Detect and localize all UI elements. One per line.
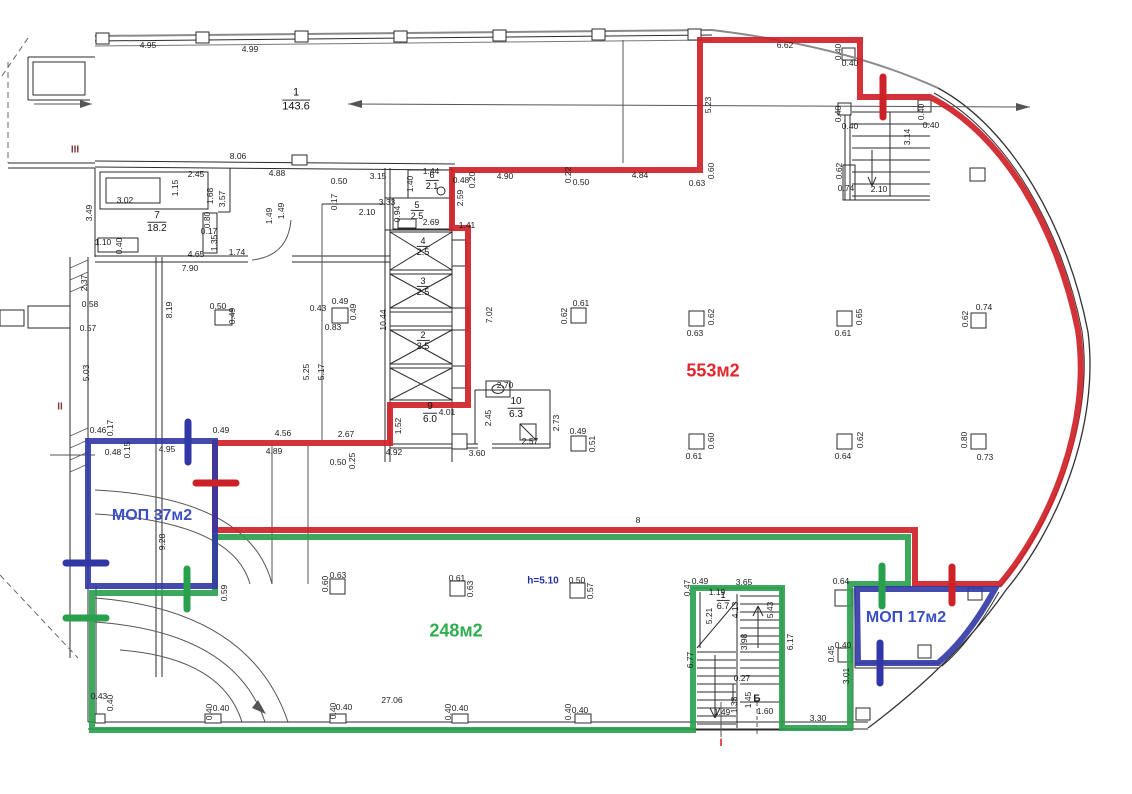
dimension-label: 1.15	[170, 180, 180, 197]
dimension-label: 0.27	[734, 673, 751, 683]
dimension-label: 2.59	[455, 190, 465, 207]
dimension-label: 3.14	[902, 129, 912, 146]
dimension-label: 3.98	[739, 634, 749, 651]
room-number: 4	[417, 236, 430, 247]
dimension-label: 2.10	[359, 207, 376, 217]
room-stamp: 96.0	[423, 401, 437, 426]
dimension-label: 0.49	[213, 425, 230, 435]
dimension-label: 5.21	[704, 608, 714, 625]
dimension-label: 4.89	[266, 446, 283, 456]
dimension-label: 2.45	[483, 410, 493, 427]
dimension-label: 4.95	[140, 40, 157, 50]
dimension-label: 0.83	[325, 322, 342, 332]
dimension-label: 0.74	[838, 183, 855, 193]
dimension-label: 27.06	[381, 695, 402, 705]
dimension-label: 3.02	[117, 195, 134, 205]
dimension-label: 1.74	[229, 247, 246, 257]
area-label: 553м2	[686, 361, 739, 382]
dimension-label: 2.37	[79, 275, 89, 292]
room-area: 2.5	[417, 287, 430, 298]
dimension-label: 4.95	[159, 444, 176, 454]
dimension-label: 3.57	[217, 191, 227, 208]
area-label: h=5.10	[527, 576, 558, 587]
dimension-label: 0.60	[706, 433, 716, 450]
dimension-label: 4.88	[269, 168, 286, 178]
dimension-label: 4.84	[632, 170, 649, 180]
dimension-label: 1.45	[743, 692, 753, 709]
room-area: 143.6	[282, 100, 310, 113]
label-layer: 4.954.996.625.230.400.400.400.400.400.40…	[0, 0, 1132, 794]
dimension-label: 0.49	[332, 296, 349, 306]
dimension-label: 0.62	[960, 311, 970, 328]
room-area: 6.7	[717, 601, 730, 612]
area-label: 248м2	[429, 621, 482, 642]
dimension-label: 0.25	[347, 453, 357, 470]
dimension-label: 6.17	[785, 634, 795, 651]
dimension-label: 6.62	[777, 40, 794, 50]
dimension-label: 0.65	[854, 309, 864, 326]
room-number: 1	[282, 87, 310, 101]
dimension-label: 0.57	[80, 323, 97, 333]
dimension-label: 0.62	[834, 163, 844, 180]
room-number: 5	[411, 200, 424, 211]
room-area: 2.5	[411, 211, 424, 222]
dimension-label: 0.50	[573, 177, 590, 187]
axis-marker: II	[57, 402, 63, 413]
dimension-label: 0.50	[210, 301, 227, 311]
dimension-label: 0.63	[687, 328, 704, 338]
room-number: 1	[717, 590, 730, 601]
dimension-label: 3.60	[469, 448, 486, 458]
dimension-label: 5.23	[703, 97, 713, 114]
dimension-label: 0.40	[835, 640, 852, 650]
room-stamp: 106.3	[507, 396, 524, 421]
room-stamp: 1143.6	[282, 87, 310, 114]
room-stamp: 718.2	[147, 210, 166, 235]
dimension-label: 6.77	[685, 652, 695, 669]
dimension-label: 9.28	[157, 534, 167, 551]
dimension-label: 1.10	[95, 237, 112, 247]
dimension-label: 0.62	[706, 309, 716, 326]
dimension-label: 1.52	[393, 418, 403, 435]
axis-marker: Б	[753, 694, 760, 705]
area-label: МОП 37м2	[112, 507, 192, 525]
room-stamp: 62.1	[426, 170, 439, 192]
dimension-label: 1.40	[405, 176, 415, 193]
room-area: 6.3	[507, 408, 524, 420]
room-number: 10	[507, 396, 524, 409]
dimension-label: 2.10	[871, 184, 888, 194]
dimension-label: 0.94	[392, 206, 402, 223]
room-area: 18.2	[147, 222, 166, 234]
dimension-label: 7.90	[182, 263, 199, 273]
dimension-label: 2.57	[522, 436, 539, 446]
dimension-label: 1.49	[264, 208, 274, 225]
dimension-label: 8	[636, 515, 641, 525]
dimension-label: 0.49	[348, 304, 358, 321]
room-number: 2	[417, 330, 430, 341]
dimension-label: 5.03	[81, 365, 91, 382]
dimension-label: 0.50	[331, 176, 348, 186]
dimension-label: 4.01	[439, 407, 456, 417]
dimension-label: 0.40	[452, 703, 469, 713]
dimension-label: 0.40	[842, 58, 859, 68]
room-number: 9	[423, 401, 437, 414]
dimension-label: 0.60	[706, 163, 716, 180]
dimension-label: 0.50	[330, 457, 347, 467]
dimension-label: 4.99	[242, 44, 259, 54]
dimension-label: 7.02	[484, 307, 494, 324]
room-area: 2.5	[417, 247, 430, 258]
dimension-label: 0.62	[559, 308, 569, 325]
dimension-label: 0.59	[219, 585, 229, 602]
dimension-label: 0.43	[310, 303, 327, 313]
dimension-label: 2.73	[551, 415, 561, 432]
room-number: 3	[417, 276, 430, 287]
dimension-label: 0.22	[563, 167, 573, 184]
dimension-label: 0.61	[573, 298, 590, 308]
dimension-label: 0.47	[682, 580, 692, 597]
dimension-label: 0.40	[842, 121, 859, 131]
dimension-label: 0.61	[449, 573, 466, 583]
dimension-label: 0.40	[572, 705, 589, 715]
axis-marker: III	[71, 145, 79, 156]
dimension-label: 1.35	[209, 235, 219, 252]
dimension-label: 5.25	[301, 364, 311, 381]
room-number: 7	[147, 210, 166, 223]
dimension-label: 5.43	[765, 602, 775, 619]
dimension-label: 0.40	[105, 695, 115, 712]
dimension-label: 0.80	[959, 432, 969, 449]
dimension-label: 0.17	[329, 194, 339, 211]
dimension-label: 3.15	[370, 171, 387, 181]
dimension-label: 0.49	[692, 576, 709, 586]
dimension-label: 1.49	[276, 203, 286, 220]
dimension-label: 5.17	[316, 364, 326, 381]
dimension-label: 4.92	[386, 447, 403, 457]
dimension-label: 0.50	[569, 575, 586, 585]
dimension-label: 4.90	[497, 171, 514, 181]
dimension-label: 0.61	[686, 451, 703, 461]
dimension-label: 0.62	[855, 432, 865, 449]
dimension-label: 4.65	[188, 249, 205, 259]
dimension-label: 0.73	[977, 452, 994, 462]
dimension-label: 0.64	[833, 576, 850, 586]
dimension-label: 0.60	[320, 576, 330, 593]
floor-plan: 4.954.996.625.230.400.400.400.400.400.40…	[0, 0, 1132, 794]
dimension-label: 8.19	[164, 302, 174, 319]
room-stamp: 22.5	[417, 330, 430, 352]
dimension-label: 3.01	[841, 668, 851, 685]
dimension-label: 2.70	[497, 380, 514, 390]
dimension-label: 0.17	[105, 420, 115, 437]
dimension-label: 1.68	[205, 188, 215, 205]
dimension-label: 0.45	[826, 646, 836, 663]
dimension-label: 1.60	[757, 706, 774, 716]
dimension-label: 0.40	[923, 120, 940, 130]
dimension-label: 0.40	[916, 104, 926, 121]
dimension-label: 0.74	[976, 302, 993, 312]
dimension-label: 0.49	[227, 308, 237, 325]
dimension-label: 0.40	[114, 238, 124, 255]
dimension-label: 0.63	[465, 581, 475, 598]
dimension-label: 0.63	[689, 178, 706, 188]
dimension-label: 0.58	[82, 299, 99, 309]
dimension-label: 0.48	[105, 447, 122, 457]
dimension-label: 10.44	[378, 309, 388, 330]
dimension-label: 0.40	[213, 703, 230, 713]
room-number: 6	[426, 170, 439, 181]
dimension-label: 3.30	[810, 713, 827, 723]
dimension-label: 0.46	[90, 425, 107, 435]
dimension-label: 2.67	[338, 429, 355, 439]
axis-marker: I	[719, 737, 722, 749]
dimension-label: 0.49	[570, 426, 587, 436]
room-stamp: 42.5	[417, 236, 430, 258]
room-stamp: 52.5	[411, 200, 424, 222]
dimension-label: 0.63	[330, 570, 347, 580]
dimension-label: 0.51	[587, 436, 597, 453]
room-area: 2.5	[417, 341, 430, 352]
dimension-label: 0.40	[336, 702, 353, 712]
dimension-label: 3.65	[736, 577, 753, 587]
dimension-label: 1.41	[459, 220, 476, 230]
dimension-label: 0.20	[467, 172, 477, 189]
area-label: МОП 17м2	[866, 609, 946, 627]
dimension-label: 0.40	[833, 106, 843, 123]
dimension-label: 0.64	[835, 451, 852, 461]
room-area: 6.0	[423, 413, 437, 425]
dimension-label: 2.69	[423, 217, 440, 227]
dimension-label: 0.57	[585, 583, 595, 600]
room-area: 2.1	[426, 181, 439, 192]
room-stamp: 32.5	[417, 276, 430, 298]
room-stamp: 16.7	[717, 590, 730, 612]
dimension-label: 3.49	[84, 205, 94, 222]
dimension-label: 4.13	[730, 602, 740, 619]
dimension-label: 1.49	[714, 707, 731, 717]
dimension-label: 0.15	[122, 442, 132, 459]
dimension-label: 0.61	[835, 328, 852, 338]
dimension-label: 2.45	[188, 169, 205, 179]
dimension-label: 8.06	[230, 151, 247, 161]
dimension-label: 4.56	[275, 428, 292, 438]
